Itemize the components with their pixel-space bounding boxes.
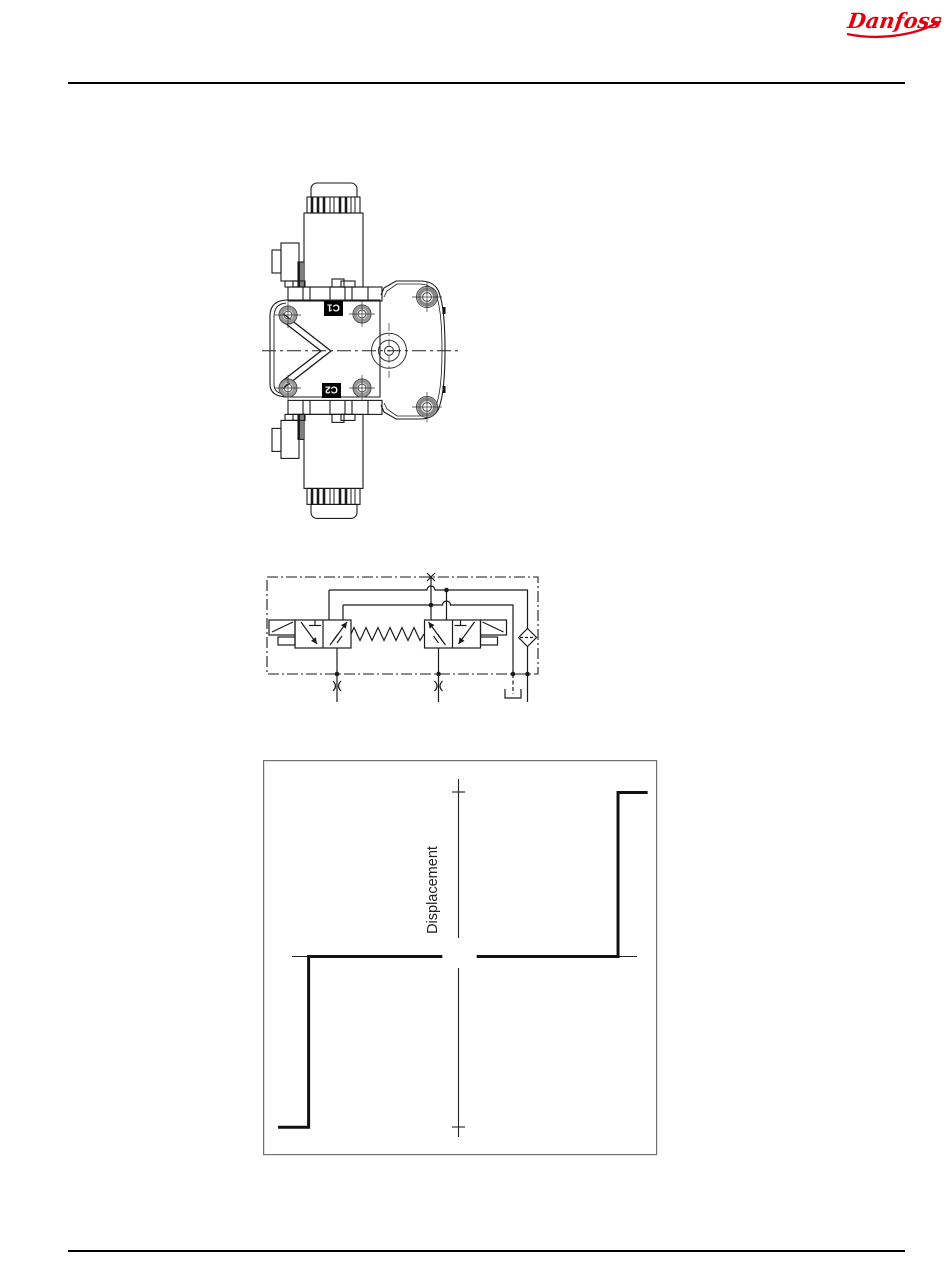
flange-edge-mark [443,386,446,393]
port-label-c1: C1 [324,301,343,316]
orifice-symbol [333,681,336,691]
flange-edge-mark [443,307,446,314]
port-label-c2-text: C2 [325,384,338,395]
header-rule [68,82,905,84]
danfoss-logo-text: Danfoss [845,8,943,33]
orifice-symbol [435,681,438,691]
bolt-hole [349,301,375,327]
datasheet-page: Danfoss [0,0,950,1288]
pilot-lines [329,577,528,674]
bolt-hole [412,392,442,422]
chart-ylabel: Displacement [425,846,441,934]
footer-rule [68,1250,905,1252]
danfoss-logo: Danfoss [843,5,945,41]
valve-top-view-drawing: C1 C2 [258,178,470,522]
chart-series-positive_branch [477,792,648,956]
chart-series-negative_branch [278,957,442,1128]
valve-mounting-flange [381,281,446,419]
bolt-hole [412,282,442,312]
hydraulic-schematic [258,568,550,708]
tank-symbol [505,674,521,698]
port-label-c1-text: C1 [327,302,340,313]
port-label-c2: C2 [322,383,341,398]
centering-spring-symbol [351,628,424,641]
schematic-enclosure-boundary [267,577,538,674]
displacement-chart-svg: Displacement [260,757,662,1159]
